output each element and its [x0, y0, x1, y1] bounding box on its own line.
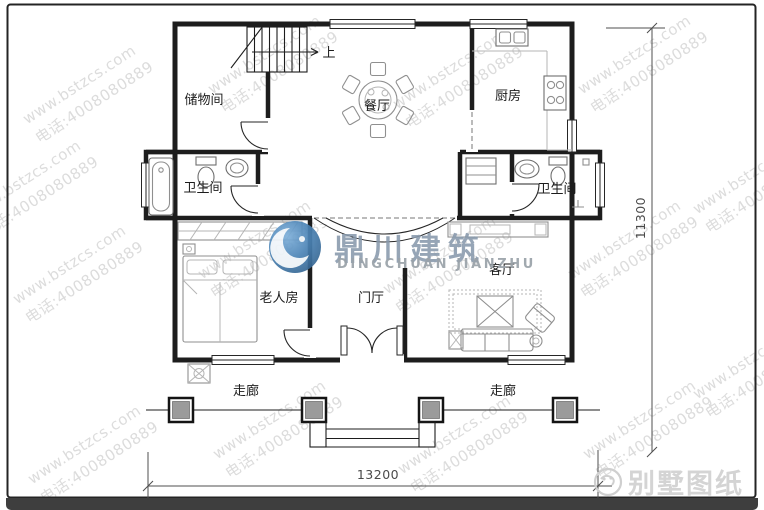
plant-icon: [530, 335, 542, 347]
kitchen-sink-icon: [496, 29, 528, 46]
window-icon: [212, 356, 274, 365]
room-label-storage: 储物间: [184, 93, 223, 108]
width-dimension-label: 13200: [357, 467, 399, 482]
room-label-dining: 餐厅: [364, 98, 390, 114]
porch-column-icon: [169, 398, 193, 422]
window-icon: [508, 356, 565, 365]
porch-column-icon: [419, 398, 443, 422]
kitchen-fixtures: [472, 29, 572, 150]
opening-dashed-line: [314, 112, 472, 218]
room-label-bath-left: 卫生间: [183, 181, 222, 196]
logo-swirl-icon: [269, 221, 321, 273]
coffee-table-icon: [477, 296, 513, 327]
room-label-corridor-right: 走廊: [490, 383, 516, 399]
bed-icon: [183, 256, 257, 342]
entrance-double-door-icon: [341, 326, 403, 355]
porch-column-icon: [553, 398, 577, 422]
porch-column-icon: [302, 398, 326, 422]
stair-up-label: 上: [322, 46, 335, 61]
porch: [146, 398, 600, 447]
room-label-foyer: 门厅: [358, 291, 384, 306]
brand-name-en: DINGCHUAN JIANZHU: [337, 257, 536, 272]
room-label-bath-right: 卫生间: [537, 182, 576, 197]
height-dimension-label: 11300: [633, 197, 648, 239]
bedroom-door-gap: [304, 328, 316, 358]
stair-icon: 上: [231, 26, 336, 72]
washbasin-icon: [515, 160, 539, 178]
window-icon: [470, 20, 527, 29]
entrance-door-gap: [340, 354, 404, 365]
stove-icon: [544, 76, 566, 110]
nightstand-icon: [183, 244, 195, 254]
bath-right-door-gap: [506, 182, 518, 214]
dingchuan-logo-icon: [269, 221, 321, 273]
entrance-steps-icon: [310, 422, 435, 447]
toilet-icon: [549, 157, 567, 185]
sofa-icon: [461, 329, 533, 351]
window-icon: [596, 163, 605, 207]
plant-icon: [188, 364, 210, 383]
room-label-kitchen: 厨房: [495, 88, 521, 104]
storage-door-gap: [262, 118, 274, 152]
floor-plan-image: www.bstzcs.com电话:4008080889 www.bstzcs.c…: [0, 0, 764, 510]
window-icon: [330, 20, 415, 29]
bathtub-icon: [149, 158, 173, 215]
washbasin-icon: [226, 159, 248, 177]
room-label-elder: 老人房: [259, 290, 298, 306]
window-icon: [568, 120, 577, 152]
bottom-bar: [6, 498, 758, 510]
floor-drain-icon: [583, 159, 589, 165]
room-label-corridor-left: 走廊: [233, 383, 259, 399]
cabinet-icon: [466, 158, 496, 184]
shop-logo-icon: [592, 466, 624, 498]
bath-left-door-gap: [252, 184, 264, 216]
